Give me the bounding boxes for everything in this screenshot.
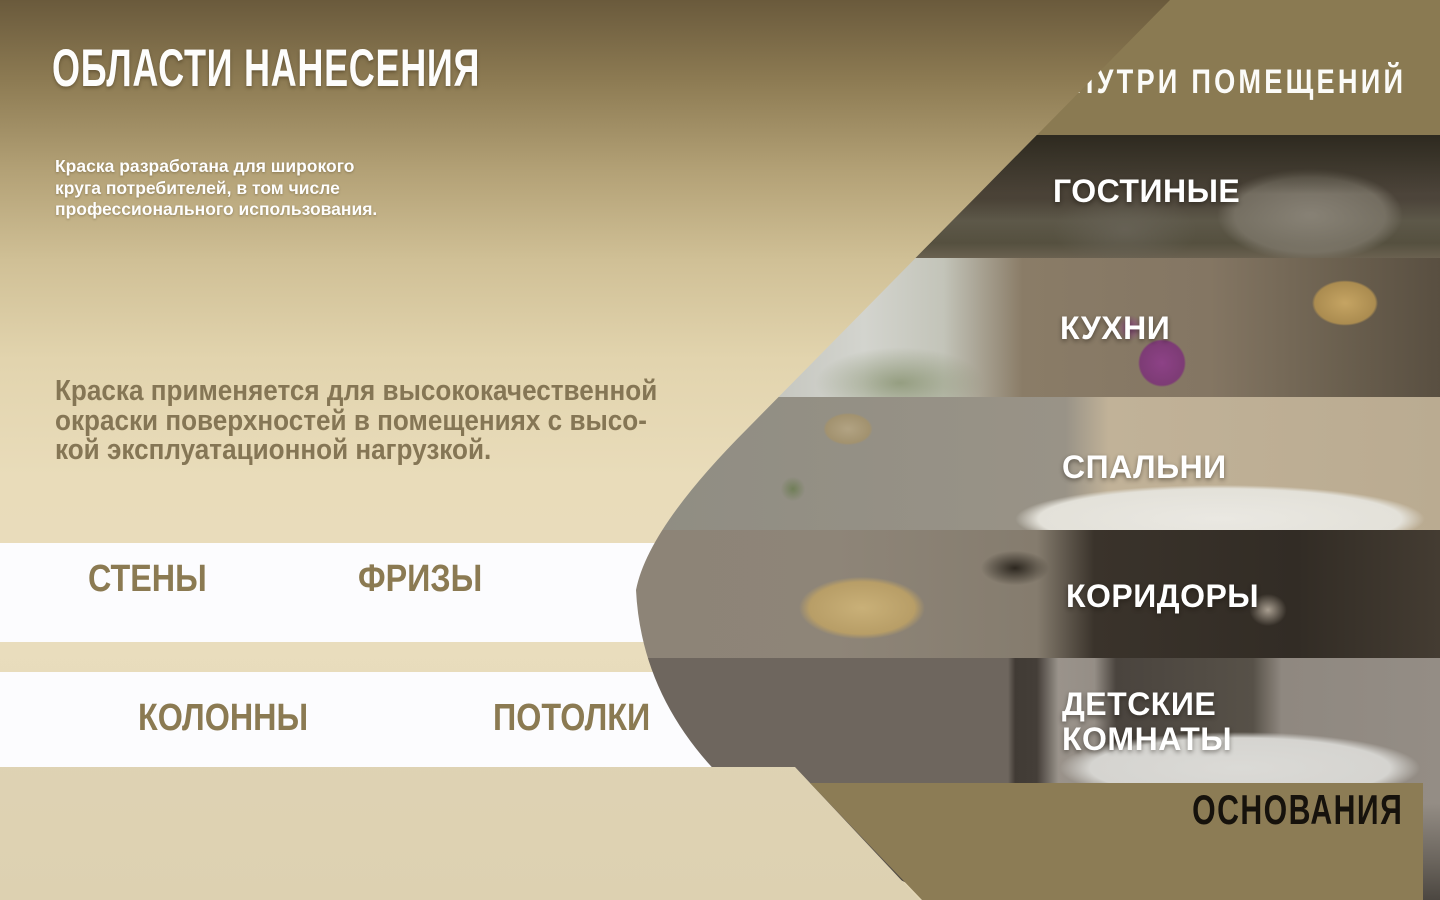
room-label-corridors: КОРИДОРЫ [1066, 579, 1259, 614]
room-label-living-rooms: ГОСТИНЫЕ [1053, 174, 1240, 209]
intro-paragraph: Краска разработана для широкого круга по… [55, 156, 475, 221]
surface-label-columns: КОЛОННЫ [138, 698, 338, 738]
room-label-children-rooms: ДЕТСКИЕ КОМНАТЫ [1062, 687, 1232, 757]
slide-canvas: ОБЛАСТИ НАНЕСЕНИЯ Краска разработана для… [0, 0, 1440, 900]
surface-label-walls: СТЕНЫ [88, 559, 228, 599]
footer-label: ОСНОВАНИЯ [1110, 788, 1403, 832]
description-text: Краска применяется для высококачественно… [55, 377, 657, 466]
page-title-text: ОБЛАСТИ НАНЕСЕНИЯ [52, 41, 480, 97]
interior-header: ВНУТРИ ПОМЕЩЕНИЙ [962, 64, 1406, 100]
surface-label-friezes: ФРИЗЫ [358, 559, 504, 599]
surface-label-ceilings: ПОТОЛКИ [493, 698, 678, 738]
room-label-bedrooms: СПАЛЬНИ [1062, 450, 1227, 485]
description-paragraph: Краска применяется для высококачественно… [55, 377, 815, 466]
page-title: ОБЛАСТИ НАНЕСЕНИЯ [52, 41, 682, 97]
room-label-kitchens: КУХНИ [1060, 311, 1170, 346]
